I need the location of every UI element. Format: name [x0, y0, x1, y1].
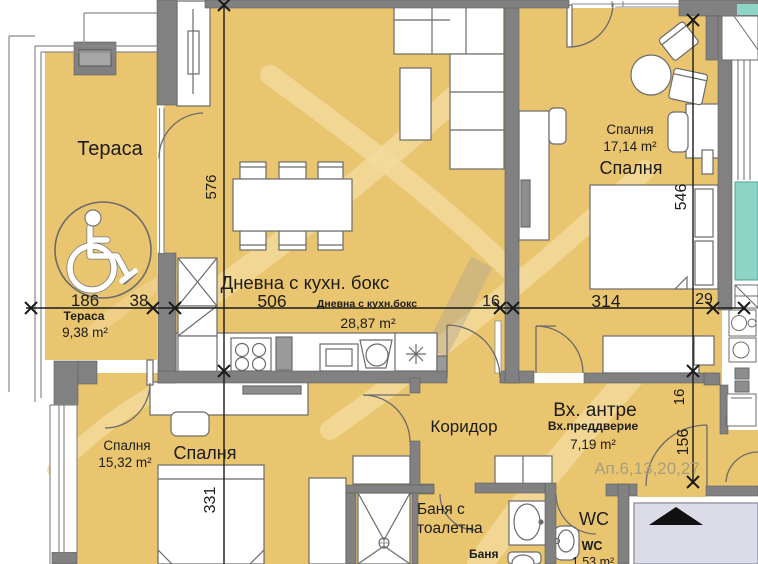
svg-text:546: 546	[673, 184, 690, 211]
svg-text:Баня с: Баня с	[417, 501, 465, 518]
svg-text:16: 16	[482, 293, 500, 310]
svg-text:тоалетна: тоалетна	[417, 520, 483, 537]
svg-text:Вх. антре: Вх. антре	[553, 400, 636, 421]
svg-text:Тераса: Тераса	[77, 138, 143, 160]
svg-text:Дневна с кухн.бокс: Дневна с кухн.бокс	[317, 298, 417, 310]
svg-text:331: 331	[202, 487, 219, 514]
svg-text:WC: WC	[582, 539, 603, 553]
svg-text:9,38 m²: 9,38 m²	[62, 325, 108, 340]
svg-text:314: 314	[591, 291, 620, 311]
svg-text:28,87 m²: 28,87 m²	[340, 315, 396, 331]
svg-text:Баня: Баня	[469, 547, 499, 561]
svg-text:7,19 m²: 7,19 m²	[570, 437, 616, 452]
svg-text:29: 29	[695, 291, 713, 308]
svg-text:Спалня: Спалня	[103, 438, 150, 453]
svg-text:Дневна с кухн. бокс: Дневна с кухн. бокс	[221, 272, 390, 293]
svg-text:16: 16	[671, 389, 688, 406]
svg-text:Вх.преддверие: Вх.преддверие	[548, 419, 639, 433]
svg-text:506: 506	[257, 291, 286, 311]
svg-text:Спалня: Спалня	[600, 158, 663, 178]
svg-text:Ап.6,13,20,27: Ап.6,13,20,27	[594, 459, 700, 478]
svg-text:38: 38	[130, 291, 149, 310]
svg-text:186: 186	[71, 291, 99, 310]
svg-text:Спалня: Спалня	[174, 443, 237, 463]
svg-text:Тераса: Тераса	[64, 309, 105, 323]
svg-text:15,32 m²: 15,32 m²	[98, 455, 152, 470]
svg-text:156: 156	[675, 429, 692, 456]
svg-text:WC: WC	[579, 509, 609, 529]
svg-text:17,14 m²: 17,14 m²	[603, 139, 657, 154]
svg-text:576: 576	[203, 174, 220, 199]
svg-text:Коридор: Коридор	[430, 417, 497, 436]
svg-text:1,53 m²: 1,53 m²	[572, 555, 614, 564]
svg-text:Спалня: Спалня	[606, 122, 653, 137]
